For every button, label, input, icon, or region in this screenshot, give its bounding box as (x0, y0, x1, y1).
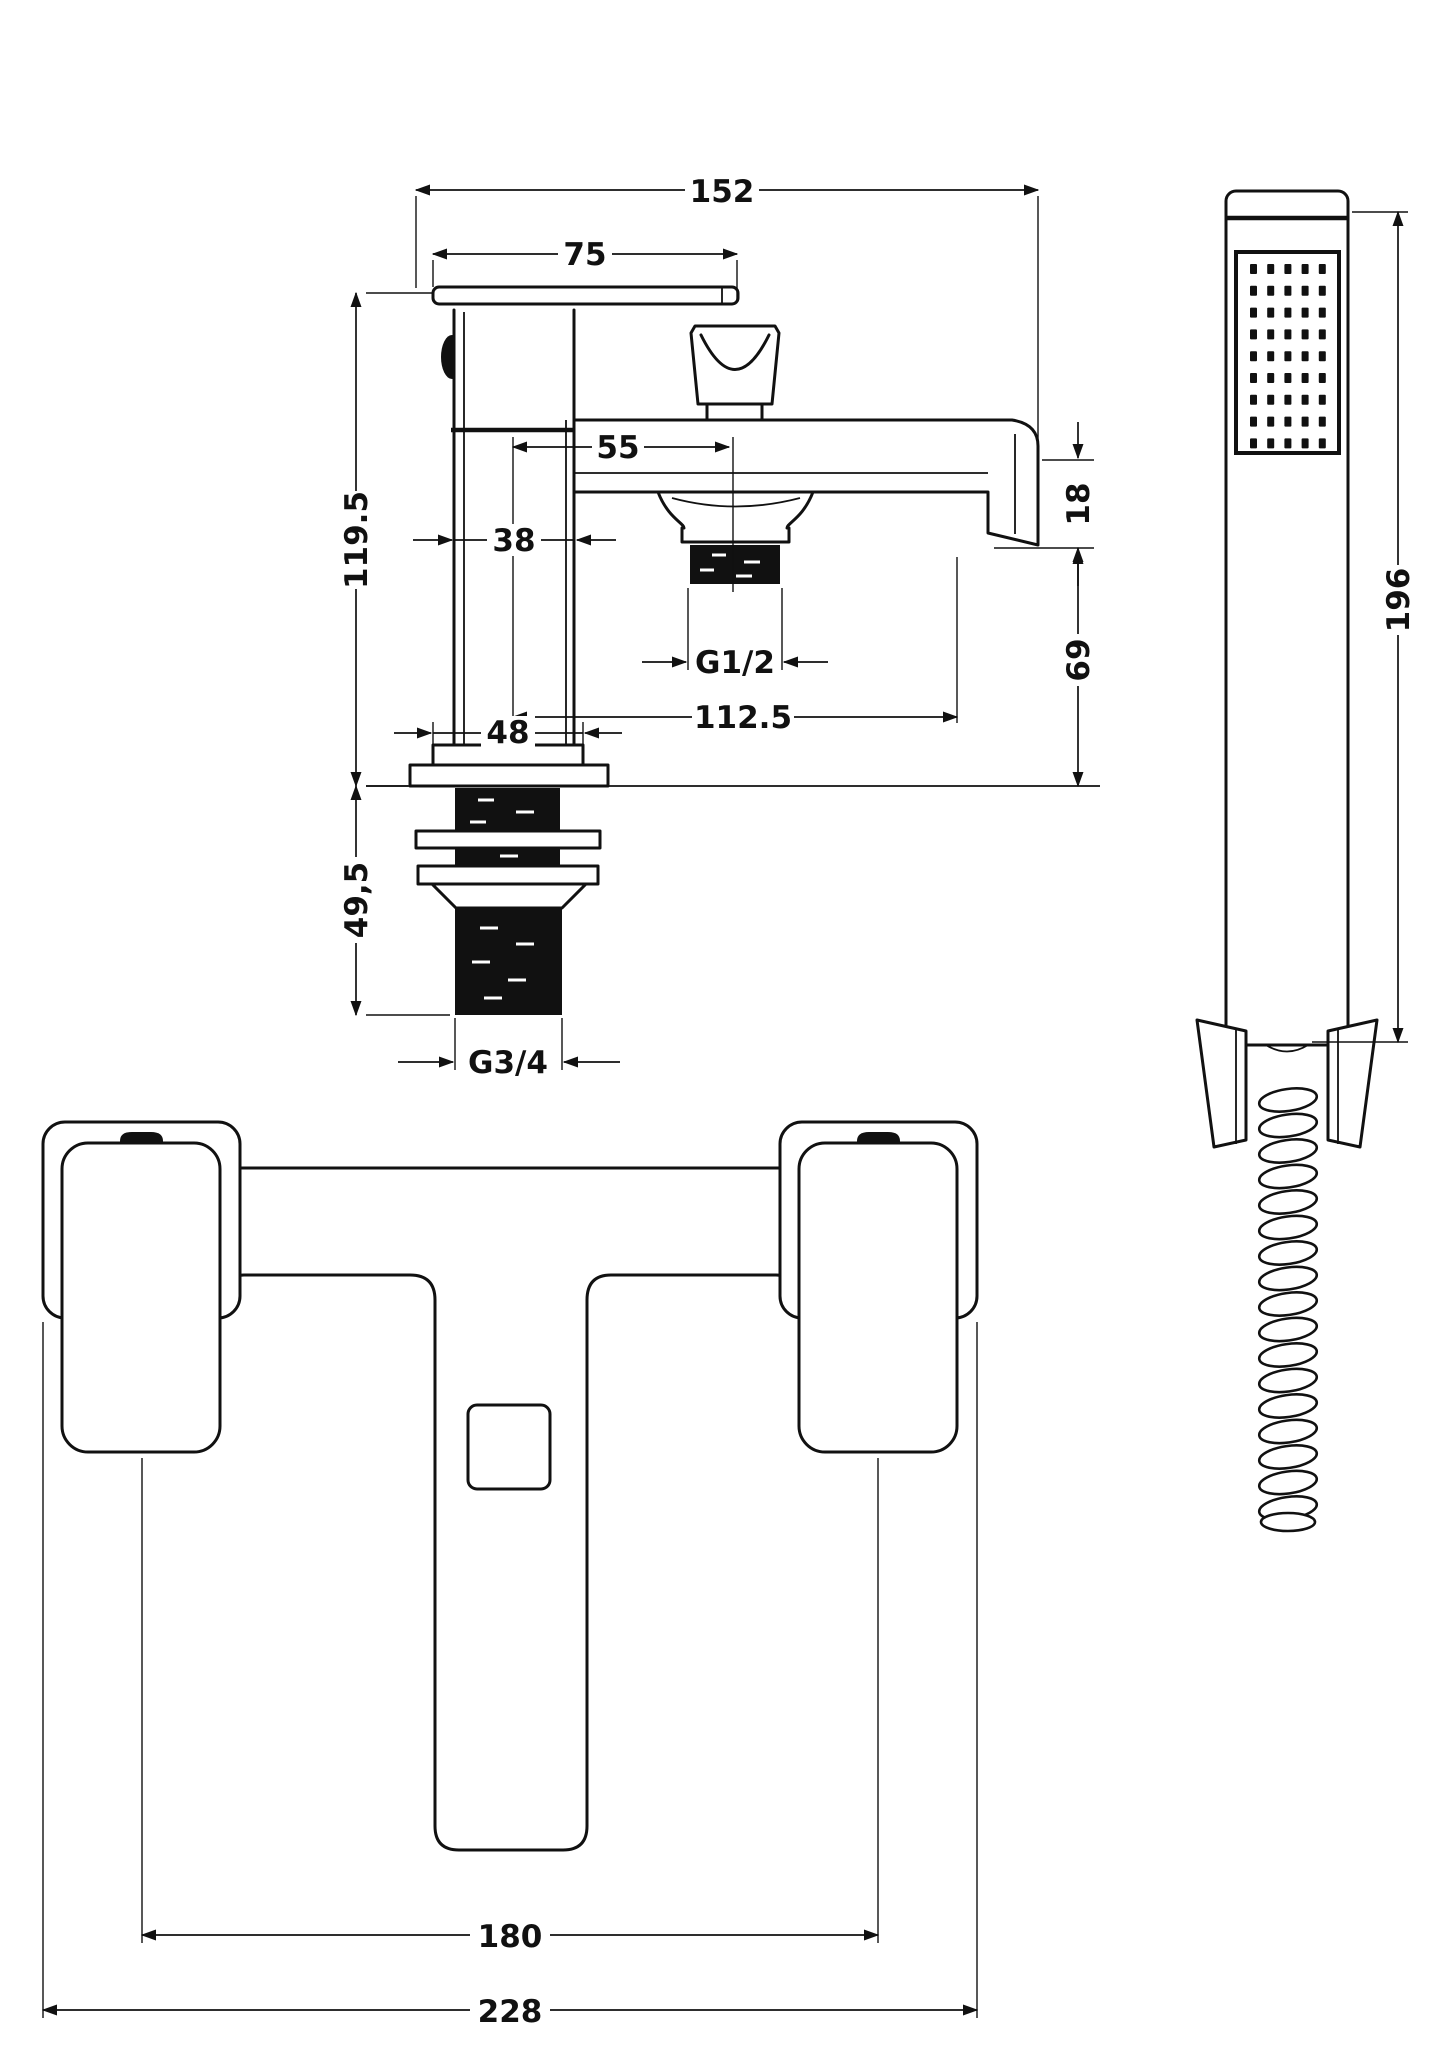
left-handle (62, 1143, 220, 1452)
svg-text:75: 75 (563, 237, 606, 273)
dim-inlet-thread: G3/4 (398, 1018, 620, 1081)
dim-spout-clearance: 69 (1061, 548, 1097, 786)
left-handle-cap (120, 1132, 163, 1143)
svg-text:18: 18 (1061, 482, 1097, 525)
dim-body-width: 38 (413, 523, 616, 559)
handset-view: 196 (1197, 191, 1417, 1531)
threaded-shank (416, 788, 600, 1015)
diverter-knob (691, 326, 779, 420)
lever-handle (433, 287, 738, 304)
svg-text:38: 38 (492, 523, 535, 559)
wall-bar (222, 1168, 800, 1850)
svg-text:228: 228 (478, 1994, 543, 2030)
right-handle-cap (857, 1132, 900, 1143)
side-view: 152 75 119.5 55 (339, 173, 1100, 1081)
svg-text:180: 180 (478, 1919, 543, 1955)
spray-face (1236, 252, 1339, 453)
deck-flange (366, 745, 1100, 786)
drawing-sheet: 152 75 119.5 55 (0, 0, 1445, 2045)
dim-overall-width: 228 (43, 1993, 977, 2030)
svg-text:G1/2: G1/2 (695, 645, 775, 681)
svg-text:69: 69 (1061, 638, 1097, 681)
dim-shower-outlet-thread: G1/2 (642, 588, 828, 681)
svg-text:119.5: 119.5 (339, 491, 375, 589)
right-handle (799, 1143, 957, 1452)
g-half-thread (690, 545, 780, 584)
diverter-button (468, 1405, 550, 1489)
dim-inlet-centres: 180 (142, 1918, 878, 1955)
svg-text:55: 55 (596, 430, 639, 466)
svg-text:48: 48 (486, 715, 529, 751)
svg-text:49,5: 49,5 (339, 862, 375, 939)
svg-text:152: 152 (690, 174, 755, 210)
g-three-quarter-thread (455, 908, 562, 1015)
centre-body (222, 1275, 798, 1850)
svg-text:G3/4: G3/4 (468, 1045, 548, 1081)
technical-drawing-canvas: 152 75 119.5 55 (0, 0, 1445, 2045)
svg-text:112.5: 112.5 (694, 700, 792, 736)
front-view: 180 228 (43, 1122, 977, 2030)
dim-shank-length: 49,5 (339, 786, 450, 1015)
svg-text:196: 196 (1381, 568, 1417, 633)
shower-hose (1258, 1085, 1318, 1531)
dim-base-width: 48 (394, 715, 622, 751)
